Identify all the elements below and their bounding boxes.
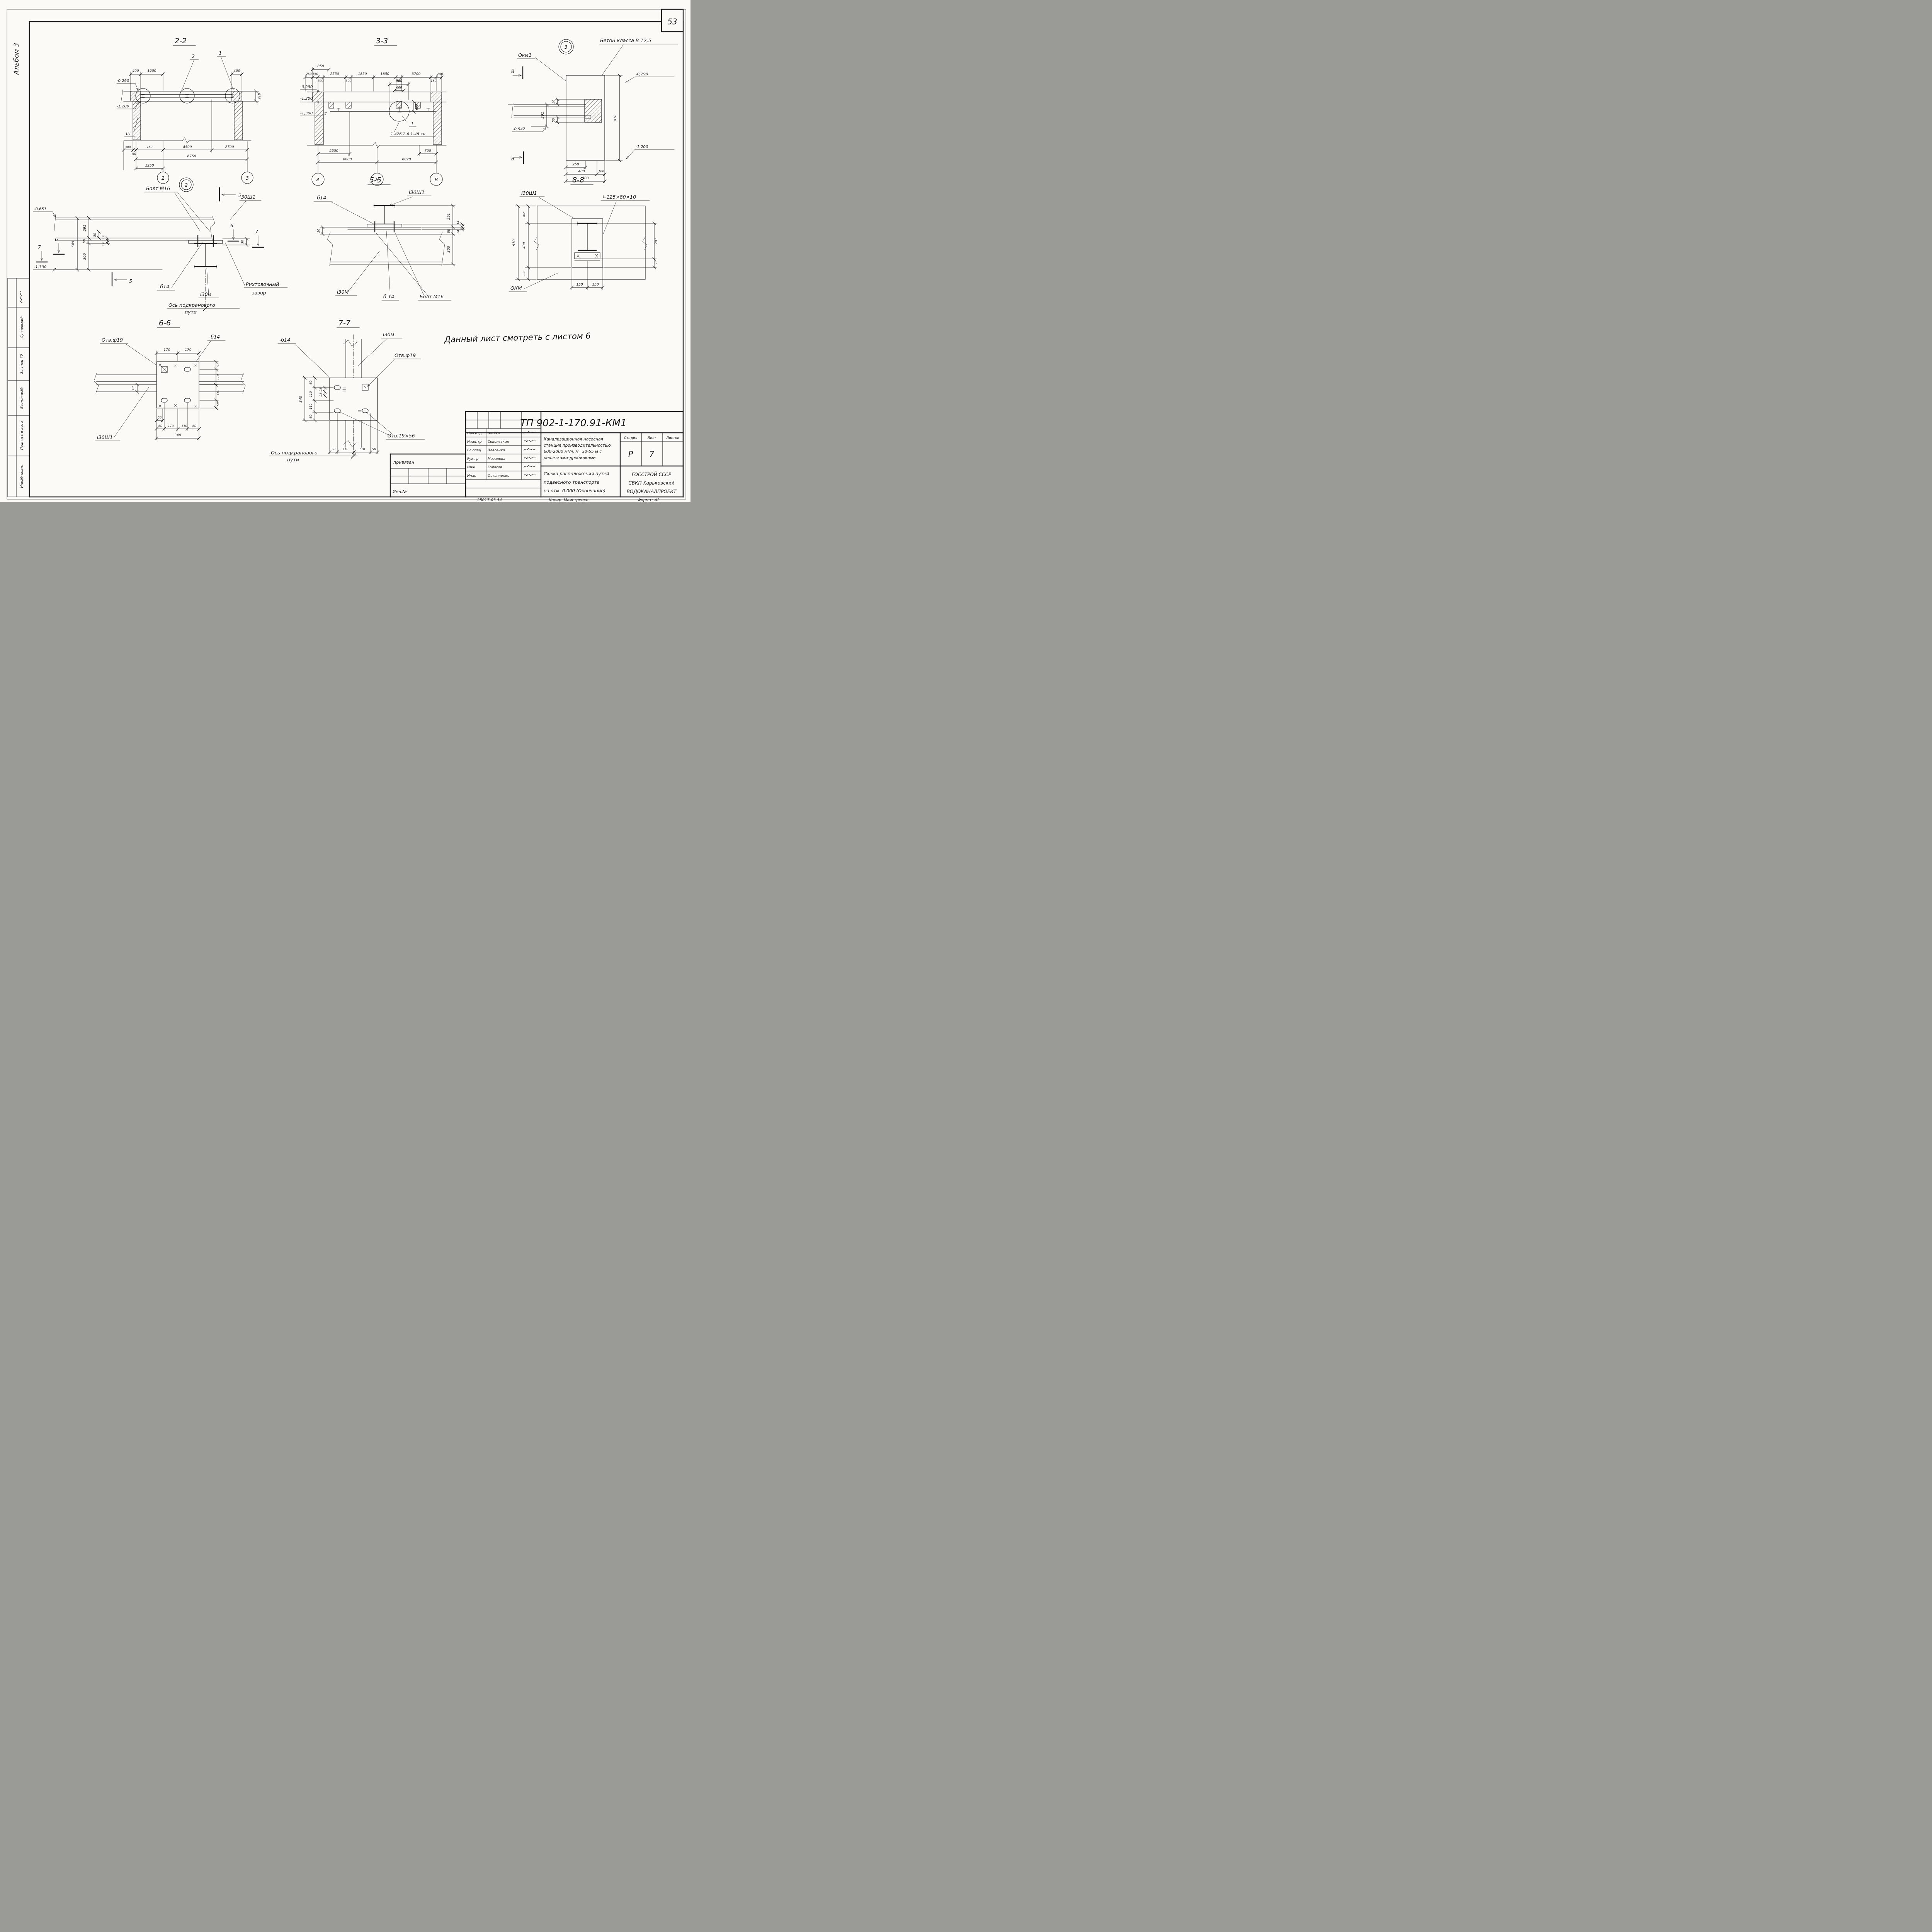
- axis-label-2: пути: [185, 309, 197, 315]
- dim-110: 110: [181, 424, 187, 428]
- signature: [524, 449, 535, 451]
- dim-750: 750: [146, 145, 152, 149]
- dim-850: 850: [317, 65, 324, 68]
- section-6-6: 6-6 Отв.ф19 -б14 I30Ш1 170 170 50 110 11…: [91, 316, 253, 459]
- staff-role: Гл.спец.: [467, 449, 482, 452]
- elevation-3: -1,300: [300, 111, 313, 116]
- staff-name: Голосов: [488, 466, 502, 469]
- bottom-dimensions: [124, 100, 247, 172]
- staff-role: Нач.отд: [467, 432, 481, 435]
- dim-30: 30: [93, 233, 97, 237]
- dim-56: 56: [158, 416, 162, 419]
- elevation-bottom: -1,200: [636, 145, 648, 149]
- dim-302: 302: [522, 212, 526, 218]
- elevation-top: -0,651: [34, 207, 46, 211]
- document-number: ТП 902-1-170.91-КМ1: [520, 417, 626, 429]
- staff-role: Рук.гр.: [467, 457, 480, 461]
- section-title: 3-3: [376, 37, 388, 45]
- dim-50: 50: [332, 447, 335, 451]
- dim-110: 110: [342, 447, 348, 451]
- slab-section: [534, 206, 647, 279]
- dim-340: 340: [299, 396, 303, 402]
- inv-number-label: Инв.№: [393, 489, 407, 494]
- dim: 250: [437, 72, 443, 76]
- signature: [524, 440, 535, 442]
- callout-1: 1: [219, 50, 222, 56]
- section-title: 5-5: [369, 176, 381, 184]
- gusset-plate: [330, 378, 378, 420]
- label-i30m: I30М: [337, 289, 349, 295]
- label-i30sh1: I30Ш1: [409, 189, 425, 195]
- dim-170: 170: [185, 348, 191, 352]
- stage-label: Стадия: [624, 436, 638, 440]
- section-title: 7-7: [338, 319, 350, 327]
- elevation-1: -0,290: [300, 85, 313, 89]
- dim-60: 60: [158, 424, 162, 428]
- dim-170: 170: [163, 348, 170, 352]
- dim-300: 300: [83, 253, 87, 260]
- elevation-2: -1,200: [300, 97, 313, 101]
- dim-2550: 2550: [330, 149, 338, 153]
- dim-910: 910: [512, 239, 516, 246]
- dim-60: 60: [309, 415, 313, 418]
- cut-5-label-bottom: 5: [129, 278, 132, 284]
- dim: 150: [312, 72, 318, 76]
- cut-5-label: 5: [238, 192, 241, 198]
- bottom-margin: 25017-03 54 Копир. Маистренко Формат А2: [0, 497, 690, 502]
- project-line: Канализационная насосная: [544, 437, 603, 442]
- dim-110: 110: [216, 389, 220, 395]
- dim: 1850: [381, 72, 389, 76]
- dim-291: 291: [655, 238, 658, 244]
- signature: [524, 466, 535, 468]
- dim-910: 910: [614, 114, 617, 121]
- staff-name: Остапченко: [488, 474, 510, 478]
- left-margin-column: Альбом 3 Лучновский За.спец 70 Взам.инв.…: [5, 22, 30, 502]
- dim-340: 340: [174, 434, 181, 437]
- margin-cells: [8, 278, 29, 497]
- label-b14: -б14: [158, 284, 169, 289]
- label-okm1: Окм1: [518, 52, 532, 58]
- dim-60: 60: [309, 381, 313, 384]
- dim-1250-bottom: 1250: [145, 164, 154, 168]
- dim-150: 150: [592, 283, 599, 287]
- dim-58: 58: [82, 239, 86, 243]
- dim-208: 208: [522, 270, 526, 276]
- drawing-title-line: Схема расположения путей: [544, 471, 609, 476]
- axis-label-1: Ось подкранового: [168, 302, 215, 308]
- dim-14: 14: [102, 235, 105, 239]
- elevation-mid: -0,942: [513, 127, 525, 131]
- dim-60: 60: [192, 424, 196, 428]
- label-i30sh1: I30Ш1: [97, 434, 113, 440]
- sheet-value: 7: [650, 449, 655, 459]
- drawing-sheet: 53 Альбом 3 Лучновский За.спец 70 Взам.и…: [0, 0, 690, 502]
- dim-19: 19: [131, 386, 135, 390]
- bottom-dimensions: [318, 112, 436, 173]
- beam-band: [327, 232, 445, 266]
- detail-number: 2: [185, 182, 188, 188]
- dim-4500: 4500: [183, 145, 192, 149]
- dim-14: 14: [102, 242, 105, 246]
- label-otv-f19: Отв.ф19: [102, 337, 123, 343]
- drawing-title-line: на отм. 0.000 (Окончание): [544, 488, 605, 493]
- label-i30m: I30м: [200, 291, 211, 297]
- detail-number: 3: [565, 44, 568, 50]
- dim-50: 50: [372, 447, 376, 451]
- cut-7-left: 7: [38, 244, 41, 250]
- dim-58: 58: [447, 229, 451, 233]
- section-title: 8-8: [572, 176, 584, 184]
- dim-400-left: 400: [132, 69, 139, 73]
- project-line: станция производительностью: [544, 443, 611, 448]
- label-okm: ОКМ: [510, 285, 522, 291]
- organization: ГОССТРОЙ СССР СВКП Харьковский ВОДОКАНАЛ…: [627, 471, 677, 494]
- margin-dept: За.спец 70: [20, 354, 24, 374]
- dim-110: 110: [216, 374, 220, 380]
- right-dimensions: [396, 206, 464, 264]
- label-i30sh1: I30Ш1: [521, 190, 537, 196]
- label-bolt-m16: Болт М16: [146, 185, 170, 191]
- dim-110: 110: [309, 391, 313, 397]
- dim-1250-top: 1250: [148, 69, 156, 73]
- dim-50: 50: [655, 262, 658, 265]
- cut-mark-8: 8: [511, 68, 514, 74]
- dim-900: 900: [396, 79, 402, 83]
- dim: 300: [345, 79, 351, 83]
- slab-and-walls: [307, 92, 446, 148]
- gusset-plate: [156, 362, 199, 408]
- section-title: 2-2: [175, 37, 187, 45]
- axis-label-1: Ось подкранового: [271, 450, 318, 456]
- dim-6750: 6750: [187, 155, 196, 158]
- copier-label: Копир. Маистренко: [549, 498, 588, 502]
- section-8-8: 8-8 I30Ш1 ∟125×80×10 ОКМ 302 400 208 910…: [500, 173, 670, 304]
- label-b14b: б-14: [383, 294, 394, 299]
- dim-50: 50: [216, 364, 220, 367]
- section-5-5: 5-5 -б14 I30Ш1 30 291 14 14 58 300 I30М: [294, 173, 475, 316]
- label-bolt: Болт М16: [420, 294, 444, 299]
- label-30sh1: 30Ш1: [241, 194, 255, 200]
- dim-250: 250: [572, 163, 579, 167]
- cut-6-left: 6: [55, 236, 58, 242]
- drawing-title-line: подвесного транспорта: [544, 480, 599, 485]
- privyazan-label: привязан: [393, 460, 414, 465]
- top-dimensions: [305, 67, 442, 91]
- label-i30m: I30м: [383, 332, 394, 337]
- crane-beam: [136, 88, 240, 103]
- dim-6020: 6020: [402, 158, 411, 162]
- margin-name: Лучновский: [20, 316, 24, 338]
- label-b14: -б14: [279, 337, 290, 343]
- label-angle: ∟125×80×10: [602, 194, 636, 200]
- top-dimensions: [156, 351, 199, 361]
- project-line: решетками-дробилками: [543, 456, 596, 460]
- cut-6-right: 6: [230, 223, 233, 228]
- org-line: СВКП Харьковский: [628, 480, 675, 486]
- staff-role: Н.контр.: [467, 440, 483, 444]
- stage-value: Р: [628, 449, 633, 459]
- dim-14: 14: [456, 230, 460, 234]
- dim-649: 649: [71, 241, 75, 247]
- dim-50-bottom: 50: [552, 118, 555, 122]
- dim-100: 100: [598, 170, 604, 173]
- dim: 300: [318, 79, 323, 83]
- label-gap-1: Рихтовочный: [246, 281, 279, 287]
- signature: [524, 474, 535, 476]
- sheet-note: Данный лист смотреть с листом 6: [437, 328, 668, 351]
- dim-28: 28: [319, 393, 323, 396]
- dim-30: 30: [317, 229, 320, 233]
- label-gap-2: зазор: [252, 290, 266, 296]
- dim-150: 150: [576, 283, 583, 287]
- project-description: Канализационная насосная станция произво…: [543, 437, 611, 460]
- elevation-bottom: -1,200: [117, 104, 129, 109]
- sheets-label: Листов: [666, 436, 679, 440]
- label-concrete: Бетон класса В 12,5: [600, 37, 651, 43]
- top-dimensions: [131, 72, 242, 90]
- margin-podpis-data: Подпись и дата: [20, 421, 24, 450]
- elevation-top: -0,290: [636, 72, 648, 77]
- callout-2: 2: [192, 53, 195, 59]
- dim-110: 110: [309, 403, 313, 409]
- staff-name: Шейко: [488, 432, 500, 435]
- sheet-label: Лист: [647, 436, 657, 440]
- dim-291: 291: [447, 213, 451, 219]
- staff-name: Мазалова: [488, 457, 505, 461]
- dim-110: 110: [168, 424, 173, 428]
- dim-291: 291: [83, 224, 87, 231]
- left-dimensions: [303, 378, 333, 420]
- dim-700: 700: [424, 149, 431, 153]
- label-In: Iн: [126, 131, 131, 136]
- dim: 1850: [358, 72, 367, 76]
- signature: [20, 291, 22, 303]
- detail-2: 2 Болт М16 30Ш1 5 -0,651 6 7 6 7: [31, 173, 298, 316]
- callout-1: 1: [411, 121, 414, 126]
- dim: 2550: [330, 72, 339, 76]
- dim-50: 50: [216, 402, 220, 406]
- dim-600-v: 600: [415, 104, 418, 110]
- dim: 250: [306, 72, 311, 76]
- dim-300: 300: [125, 145, 131, 149]
- org-line: ГОССТРОЙ СССР: [632, 471, 672, 477]
- title-block: ТП 902-1-170.91-КМ1 привязан Инв.№ Нач.о…: [390, 410, 690, 502]
- axis-label-2: пути: [287, 457, 299, 463]
- staff-name: Сокольская: [488, 440, 509, 444]
- dim-910: 910: [258, 93, 262, 99]
- right-dimensions: [200, 362, 218, 408]
- dim-291: 291: [541, 112, 545, 118]
- dim-28: 28: [319, 388, 323, 391]
- dim-50: 50: [132, 152, 136, 156]
- dim: 3700: [412, 72, 421, 76]
- dim-300: 300: [447, 246, 451, 252]
- note-text: Данный лист смотреть с листом 6: [444, 331, 591, 344]
- right-dimensions: [598, 223, 656, 267]
- pier-and-beam: [512, 75, 605, 160]
- archive-code: 25017-03 54: [477, 498, 502, 502]
- dim-30-right: 30: [241, 240, 244, 244]
- album-label: Альбом 3: [13, 43, 20, 75]
- section-2-2: 2-2 2 1 400 1250 400 -0,290 -1,200 910 I…: [116, 34, 267, 189]
- label-b14: -б14: [209, 334, 220, 340]
- cut-7-right: 7: [255, 229, 258, 235]
- staff-name: Власенко: [488, 449, 505, 452]
- drawing-title: Схема расположения путей подвесного тран…: [544, 471, 609, 493]
- dim-2700: 2700: [225, 145, 234, 149]
- staff-role: Инж.: [467, 466, 476, 469]
- margin-inv-podl: Инв.№ подл.: [20, 465, 24, 488]
- cut-mark-V: В: [511, 156, 515, 162]
- elevation-bottom: -1,300: [34, 265, 46, 269]
- ibeam-profile: [374, 204, 395, 226]
- dim-6000: 6000: [343, 158, 352, 162]
- format-label: Формат А2: [638, 498, 660, 502]
- label-b14: -б14: [315, 195, 326, 201]
- label-otv-f19: Отв.ф19: [395, 352, 416, 358]
- dim-400-right: 400: [233, 69, 240, 73]
- signature: [524, 457, 535, 459]
- sheet-number: 53: [667, 17, 677, 26]
- staff-role: Инж.: [467, 474, 476, 478]
- dim: 150: [430, 79, 436, 83]
- dim-600: 600: [396, 86, 402, 89]
- org-line: ВОДОКАНАЛПРОЕКТ: [627, 489, 677, 494]
- dim-400: 400: [522, 242, 526, 248]
- elevation-top: -0,290: [117, 79, 129, 83]
- section-3-3: 3-3 850 250 150 300 2550 300 1850 1850 3…: [299, 34, 477, 192]
- project-line: 600-2000 м³/ч, Н=30-55 м с: [544, 449, 602, 454]
- dim-110: 110: [359, 447, 365, 451]
- margin-vzam-inv: Взам.инв.№: [20, 387, 24, 408]
- callout-ref: 1.426.2-6.1-48 кн: [391, 132, 425, 136]
- detail-3: 3 Бетон класса В 12,5 Окм1 8 -0,290 -1,2…: [508, 33, 686, 187]
- dim-14: 14: [456, 221, 460, 224]
- section-title: 6-6: [159, 319, 171, 327]
- dim-50-top: 50: [552, 100, 555, 104]
